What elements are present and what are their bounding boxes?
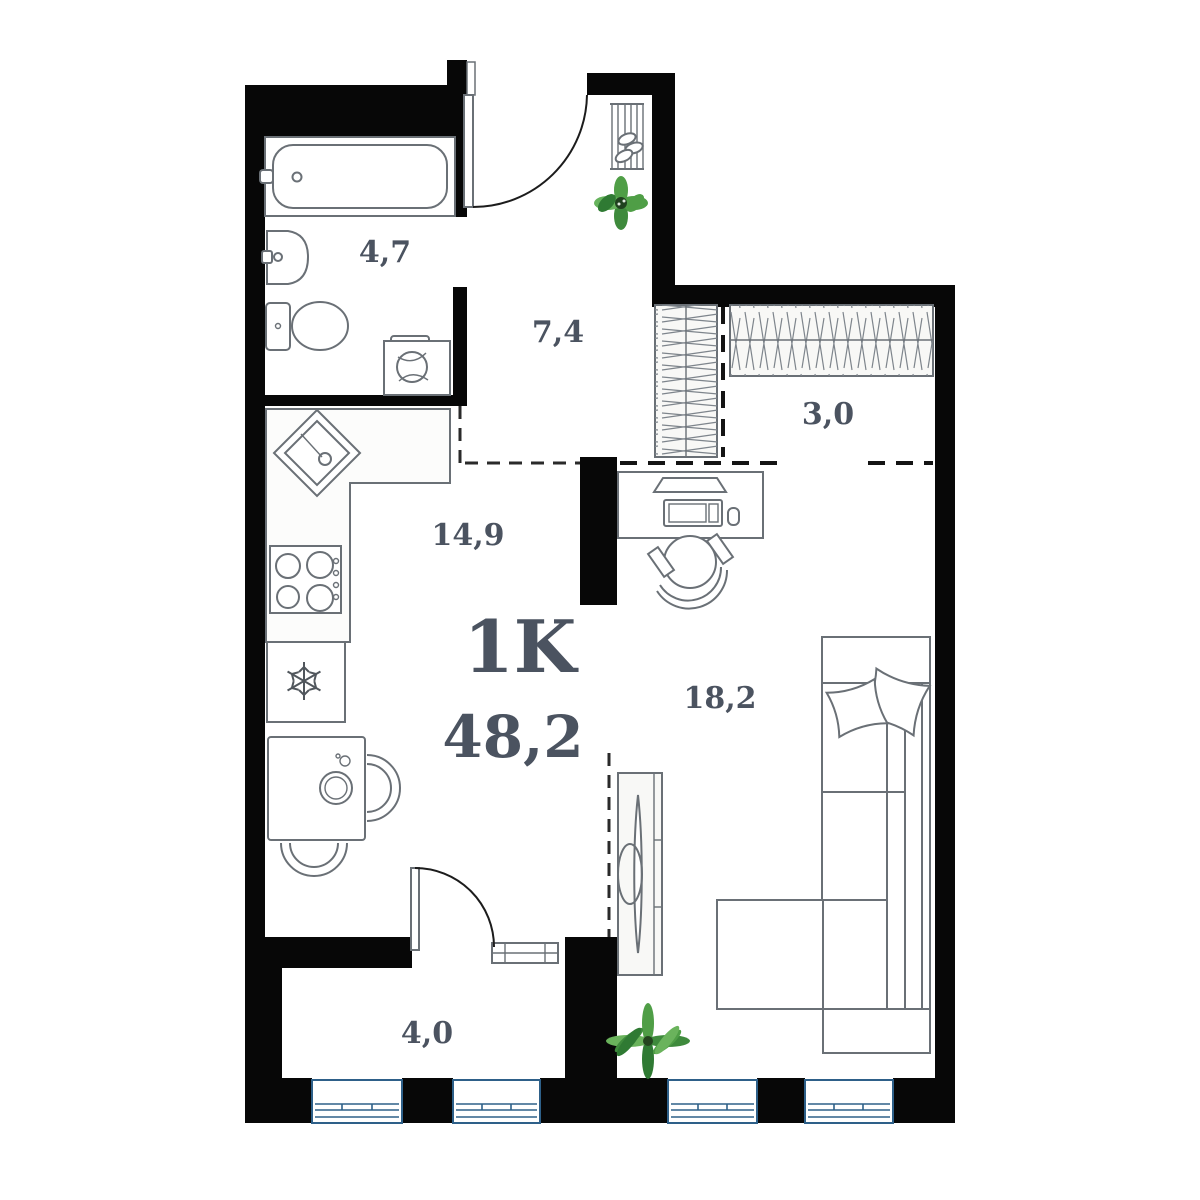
plant-hallway [594, 176, 648, 230]
wall-right [935, 285, 955, 1123]
wardrobe-left [655, 305, 717, 457]
wall-bottom-seg2 [402, 1078, 453, 1123]
window-living-2 [805, 1080, 893, 1123]
entrance-door-swing-arc [473, 95, 587, 207]
area-hallway: 7,4 [532, 315, 584, 350]
kitchen [266, 409, 450, 876]
hallway [594, 104, 648, 230]
tv-unit [618, 773, 662, 975]
bathroom-sink [262, 231, 308, 284]
wall-bottom-seg3 [540, 1078, 668, 1123]
workspace [618, 472, 763, 609]
wall-bathroom-top [245, 85, 467, 137]
sofa-armrest-bottom [823, 1009, 930, 1053]
total-area-label: 48,2 [442, 703, 583, 771]
chair-right [367, 755, 400, 821]
balcony-door-leaf [411, 868, 419, 950]
sofa-chaise [717, 900, 823, 1009]
entrance-door [464, 95, 587, 207]
plant-living [606, 1003, 690, 1079]
balcony-door-swing-arc [415, 868, 494, 947]
plan-title: 1K [464, 604, 579, 689]
bathroom [260, 137, 455, 395]
bathtub [260, 137, 455, 216]
window-living-1 [668, 1080, 757, 1123]
area-living-room: 18,2 [683, 681, 756, 716]
balcony-door [411, 868, 494, 950]
wall-kitchen-partition [580, 457, 617, 605]
window-balcony-1 [312, 1080, 402, 1123]
area-wardrobe: 3,0 [802, 397, 854, 432]
balcony-door-sill [492, 943, 558, 963]
wall-bathroom-bottom [245, 395, 467, 406]
entrance-door-leaf [464, 95, 473, 207]
dining-table [268, 737, 400, 876]
area-balcony: 4,0 [401, 1016, 453, 1051]
wall-top-right-of-door [587, 73, 675, 95]
wall-bottom-seg4 [757, 1078, 805, 1123]
fridge [267, 642, 345, 722]
wall-bottom-seg5 [893, 1078, 935, 1123]
wall-bathroom-right-lower [453, 287, 467, 406]
area-kitchen: 14,9 [431, 518, 504, 553]
entry-door-frame [467, 62, 475, 95]
area-bathroom: 4,7 [359, 235, 411, 270]
wall-bottom-seg1 [282, 1078, 312, 1123]
wall-balcony-left [245, 968, 282, 1123]
stove [270, 546, 341, 613]
wardrobe-zone [655, 305, 933, 457]
wall-bottom-balcony-door [245, 937, 412, 968]
chair-bottom [281, 843, 347, 876]
window-balcony-2 [453, 1080, 540, 1123]
floor-plan: 1K 48,2 4,7 7,4 3,0 14,9 18,2 4,0 [0, 0, 1200, 1200]
shoe-rack [610, 104, 644, 169]
wardrobe-right [730, 305, 933, 376]
office-chair [648, 534, 733, 608]
wall-upper-right [652, 285, 955, 307]
toilet [266, 302, 348, 350]
wall-balcony-living [565, 937, 617, 1078]
wall-hall-right [652, 95, 675, 292]
washing-machine [384, 336, 450, 395]
